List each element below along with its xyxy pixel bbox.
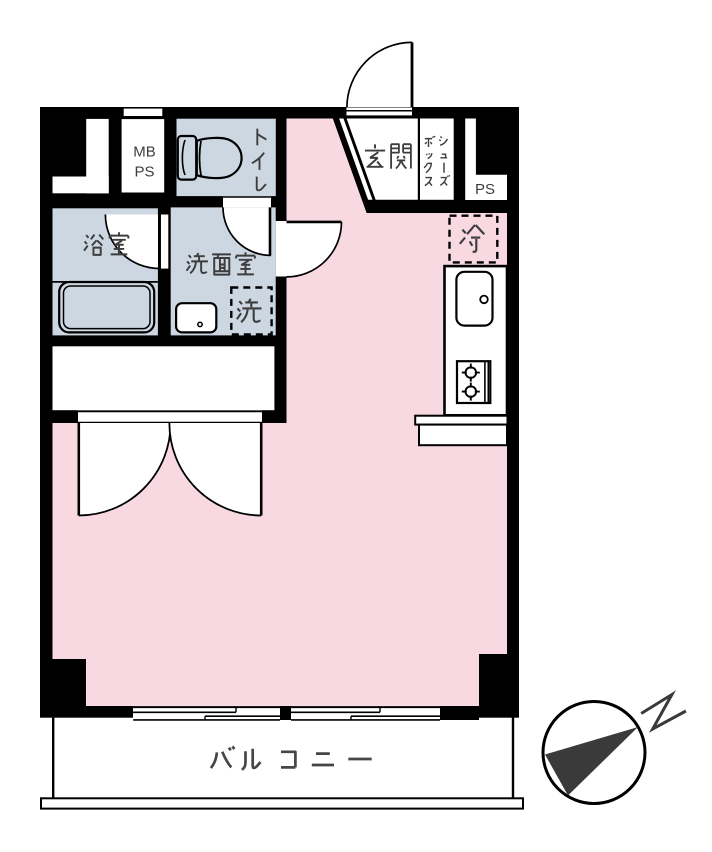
svg-text:MB: MB (133, 144, 156, 161)
svg-text:PS: PS (134, 164, 154, 181)
svg-text:PS: PS (475, 181, 495, 198)
